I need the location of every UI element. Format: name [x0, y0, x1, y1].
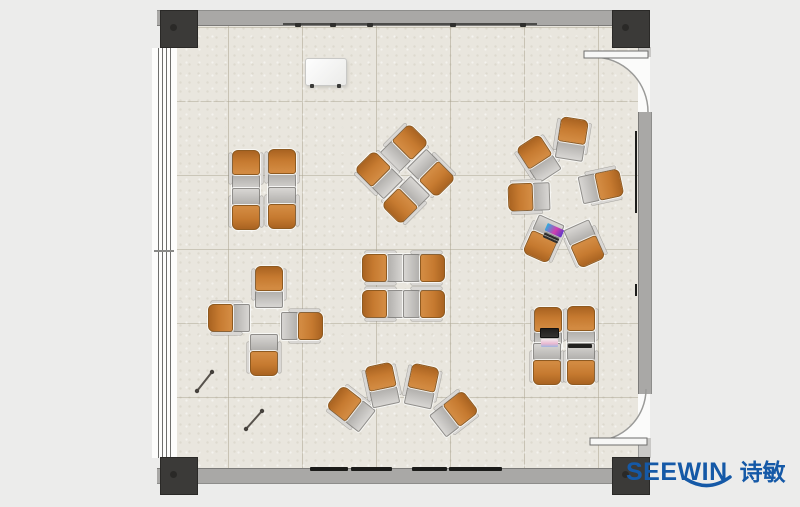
tablet-desk: [233, 304, 250, 332]
desk-chair-unit: [505, 181, 550, 213]
chair-seat: [232, 205, 260, 230]
tablet-desk: [387, 254, 404, 282]
desk-chair-unit: [577, 167, 626, 205]
chair-seat: [362, 290, 387, 318]
chair-seat: [533, 360, 561, 385]
brand-logo: SEEWIN诗敏: [626, 453, 786, 487]
chair-seat: [298, 312, 323, 340]
desk-chair-unit: [206, 303, 250, 333]
desk-chair-unit: [254, 264, 284, 308]
tablet-device: [568, 344, 592, 348]
tablet-desk: [268, 187, 296, 204]
laptop-keyboard: [541, 339, 558, 347]
chair-seat: [232, 150, 260, 175]
desk-chair-unit: [403, 360, 441, 409]
mobile-whiteboard: [305, 58, 347, 86]
classroom-floor-plan: SEEWIN诗敏: [0, 0, 800, 507]
chair-seat: [268, 149, 296, 174]
chair-seat: [594, 168, 624, 201]
chair-seat: [255, 266, 283, 291]
tablet-desk: [403, 290, 420, 318]
chair-seat: [250, 351, 278, 376]
chair-seat: [567, 360, 595, 385]
desk-chair-unit: [267, 147, 297, 191]
desk-chair-unit: [403, 253, 447, 283]
desk-chair-unit: [249, 334, 279, 378]
whiteboard-foot: [310, 84, 314, 88]
chair-seat: [208, 304, 233, 332]
chair-seat: [557, 116, 589, 145]
tablet-desk: [387, 290, 404, 318]
desk-chair-unit: [403, 289, 447, 319]
whiteboard-foot: [337, 84, 341, 88]
chair-seat: [420, 290, 445, 318]
tablet-desk: [250, 334, 278, 351]
tablet-desk: [533, 182, 551, 211]
tablet-desk: [403, 254, 420, 282]
desk-chair-unit: [231, 188, 261, 232]
furniture-layer: [0, 0, 800, 507]
tablet-desk: [281, 312, 298, 340]
brand-logo-latin: SEEWIN: [626, 458, 728, 486]
tablet-desk: [255, 291, 283, 308]
chair-seat: [567, 306, 595, 331]
chair-seat: [268, 204, 296, 229]
laptop: [540, 328, 559, 347]
chair-seat: [508, 183, 534, 212]
chair-seat: [420, 254, 445, 282]
tablet-desk: [232, 188, 260, 205]
desk-chair-unit: [566, 304, 596, 348]
brand-logo-cjk: 诗敏: [740, 459, 786, 485]
desk-chair-unit: [566, 343, 596, 387]
laptop-screen: [540, 328, 559, 338]
desk-chair-unit: [532, 343, 562, 387]
desk-chair-unit: [360, 289, 404, 319]
chair-seat: [362, 254, 387, 282]
desk-chair-unit: [554, 114, 591, 162]
desk-chair-unit: [267, 187, 297, 231]
desk-chair-unit: [281, 311, 325, 341]
desk-chair-unit: [231, 148, 261, 192]
desk-chair-unit: [360, 253, 404, 283]
desk-chair-unit: [562, 219, 607, 271]
